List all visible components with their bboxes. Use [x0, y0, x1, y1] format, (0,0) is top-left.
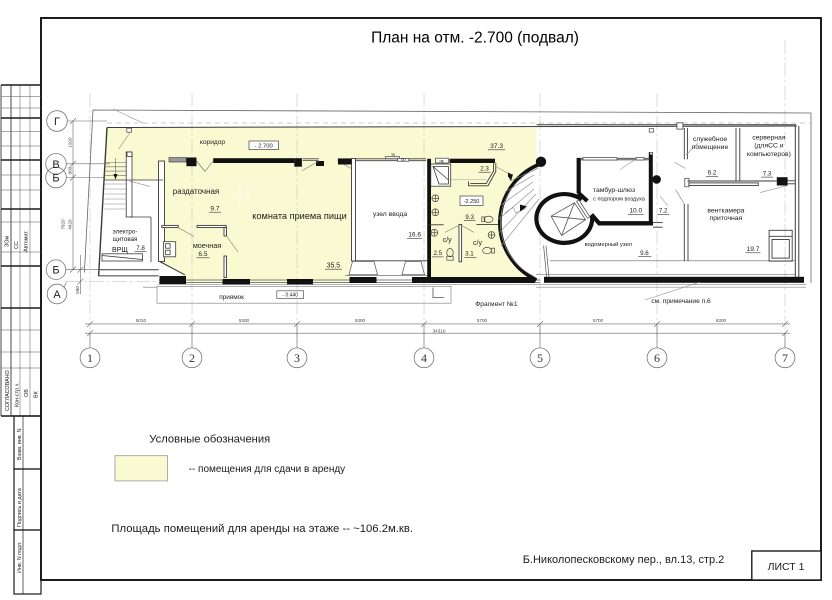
svg-text:35.5: 35.5 [327, 262, 341, 269]
svg-text:9.7: 9.7 [210, 206, 219, 213]
svg-text:6.5: 6.5 [198, 251, 207, 258]
svg-text:900: 900 [68, 166, 73, 174]
svg-text:7820: 7820 [61, 219, 66, 230]
svg-text:- 2.700: - 2.700 [255, 143, 273, 149]
svg-text:ЗОм: ЗОм [5, 236, 11, 247]
svg-text:с подпором воздуха: с подпором воздуха [593, 197, 646, 203]
svg-text:1920: 1920 [68, 137, 73, 148]
svg-text:5700: 5700 [477, 318, 488, 323]
svg-text:16.6: 16.6 [408, 232, 421, 239]
svg-text:Г: Г [54, 116, 60, 128]
svg-text:10.0: 10.0 [629, 208, 642, 215]
svg-text:7: 7 [782, 351, 788, 365]
svg-text:раздаточная: раздаточная [173, 187, 219, 196]
svg-text:Б: Б [52, 265, 59, 277]
svg-text:План на отм. -2.700 (подвал): План на отм. -2.700 (подвал) [371, 30, 579, 47]
svg-text:СС: СС [14, 241, 20, 249]
svg-text:4420: 4420 [68, 219, 73, 230]
svg-text:2: 2 [189, 351, 195, 365]
svg-text:-- помещения для сдачи в арен: -- помещения для сдачи в аренду [189, 464, 346, 475]
svg-text:6300: 6300 [716, 318, 727, 323]
svg-text:7.2: 7.2 [659, 208, 668, 215]
svg-text:9.6: 9.6 [640, 250, 649, 257]
svg-text:2.5: 2.5 [433, 250, 442, 257]
svg-text:Б.Николопесковскому пер., вл.1: Б.Николопесковскому пер., вл.13, стр.2 [523, 554, 725, 566]
svg-text:Фрагмент №1: Фрагмент №1 [475, 301, 518, 308]
svg-text:моечная: моечная [193, 241, 221, 250]
svg-text:ВРЩ: ВРЩ [112, 247, 128, 254]
svg-text:7.3: 7.3 [763, 170, 772, 177]
svg-text:00: 00 [401, 157, 406, 162]
svg-text:с/у: с/у [443, 237, 452, 244]
svg-text:3.1: 3.1 [465, 251, 474, 258]
svg-text:19.7: 19.7 [747, 246, 760, 253]
svg-text:пк: пк [439, 158, 443, 163]
svg-text:9.3: 9.3 [465, 214, 474, 221]
svg-text:5300: 5300 [239, 318, 250, 323]
svg-text:5700: 5700 [593, 318, 604, 323]
svg-text:венткамера: венткамера [707, 208, 744, 215]
svg-text:серверная: серверная [752, 135, 786, 142]
svg-text:7.8: 7.8 [136, 245, 145, 252]
svg-text:6.2: 6.2 [708, 170, 717, 177]
svg-text:Кон-стр.ч.: Кон-стр.ч. [15, 382, 21, 407]
svg-text:Площадь помещений для аренды н: Площадь помещений для аренды на этаже --… [111, 523, 413, 535]
svg-text:-2.250: -2.250 [464, 199, 480, 205]
svg-text:см. примечание п.6: см. примечание п.6 [651, 298, 711, 305]
svg-text:тамбур-шлюз: тамбур-шлюз [593, 186, 635, 194]
svg-text:R: R [236, 180, 256, 212]
svg-text:тк: тк [391, 152, 395, 157]
svg-text:Инв. N подл.: Инв. N подл. [17, 541, 23, 573]
svg-text:электро-: электро- [113, 229, 138, 236]
svg-text:СОГЛАСОВАНО: СОГЛАСОВАНО [5, 370, 11, 411]
svg-text:с/у: с/у [473, 240, 482, 247]
svg-text:приточная: приточная [710, 215, 743, 222]
svg-text:- 0.440: - 0.440 [282, 293, 298, 299]
svg-text:3: 3 [294, 351, 300, 365]
svg-text:34310: 34310 [433, 328, 446, 333]
svg-text:6: 6 [654, 351, 660, 365]
svg-text:Взам. инв. N: Взам. инв. N [17, 428, 23, 460]
svg-text:компьютеров): компьютеров) [747, 151, 791, 158]
svg-text:Автомат.: Автомат. [24, 230, 30, 252]
svg-text:4: 4 [421, 351, 427, 365]
svg-text:помещение: помещение [692, 144, 729, 151]
svg-text:Условные обозначения: Условные обозначения [149, 434, 270, 446]
svg-text:2.3: 2.3 [480, 166, 489, 173]
svg-text:В: В [52, 159, 59, 171]
svg-text:(дляСС и: (дляСС и [754, 143, 784, 150]
svg-text:Б: Б [52, 173, 59, 185]
svg-text:ВК: ВК [34, 390, 40, 398]
svg-text:щитовая: щитовая [113, 236, 138, 243]
svg-text:служебное: служебное [693, 135, 728, 143]
svg-text:580: 580 [75, 286, 80, 294]
svg-text:37.3: 37.3 [490, 143, 503, 150]
svg-text:Подпись и дата: Подпись и дата [17, 488, 23, 527]
svg-text:комната приема пищи: комната приема пищи [252, 211, 346, 221]
svg-text:1: 1 [87, 351, 93, 365]
svg-text:коридор: коридор [200, 139, 225, 146]
svg-text:5300: 5300 [355, 318, 366, 323]
svg-text:ЛИСТ 1: ЛИСТ 1 [768, 561, 805, 573]
svg-text:ОВ: ОВ [24, 389, 30, 397]
svg-text:водомерный узел: водомерный узел [585, 241, 632, 248]
svg-text:узел ввода: узел ввода [373, 211, 408, 218]
svg-text:приямок: приямок [219, 294, 244, 301]
svg-text:А: А [53, 289, 61, 301]
svg-text:5010: 5010 [136, 318, 147, 323]
svg-text:5: 5 [537, 351, 543, 365]
